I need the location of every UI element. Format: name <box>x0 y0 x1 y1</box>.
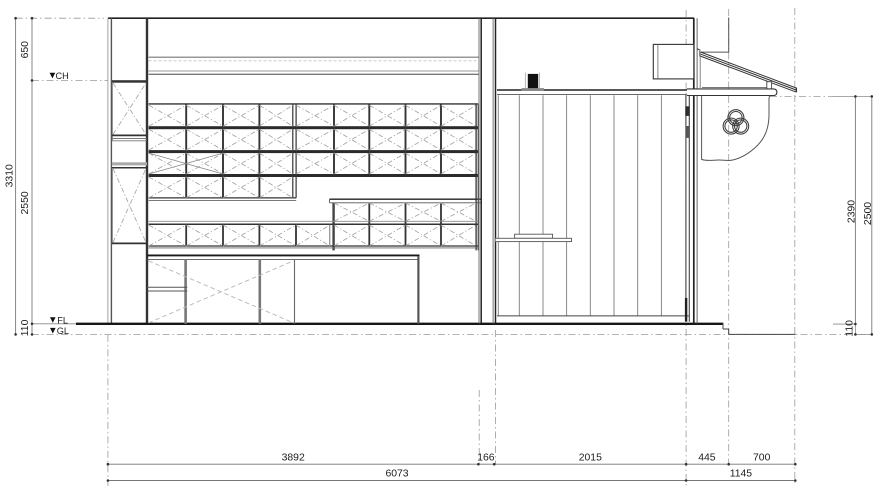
svg-text:2390: 2390 <box>847 200 858 223</box>
svg-text:FL: FL <box>57 315 68 325</box>
svg-text:2550: 2550 <box>20 191 31 214</box>
svg-text:110: 110 <box>20 319 31 336</box>
svg-text:6073: 6073 <box>385 468 408 479</box>
svg-text:650: 650 <box>20 41 31 59</box>
svg-text:GL: GL <box>57 326 69 336</box>
svg-text:110: 110 <box>845 320 856 337</box>
svg-text:2500: 2500 <box>863 202 874 225</box>
svg-text:3310: 3310 <box>4 164 15 187</box>
svg-text:445: 445 <box>698 452 716 463</box>
svg-text:2015: 2015 <box>579 452 602 463</box>
svg-text:700: 700 <box>753 452 771 463</box>
svg-text:1145: 1145 <box>730 468 753 479</box>
svg-text:3892: 3892 <box>282 452 305 463</box>
svg-text:166: 166 <box>477 452 495 463</box>
svg-text:CH: CH <box>56 71 69 81</box>
